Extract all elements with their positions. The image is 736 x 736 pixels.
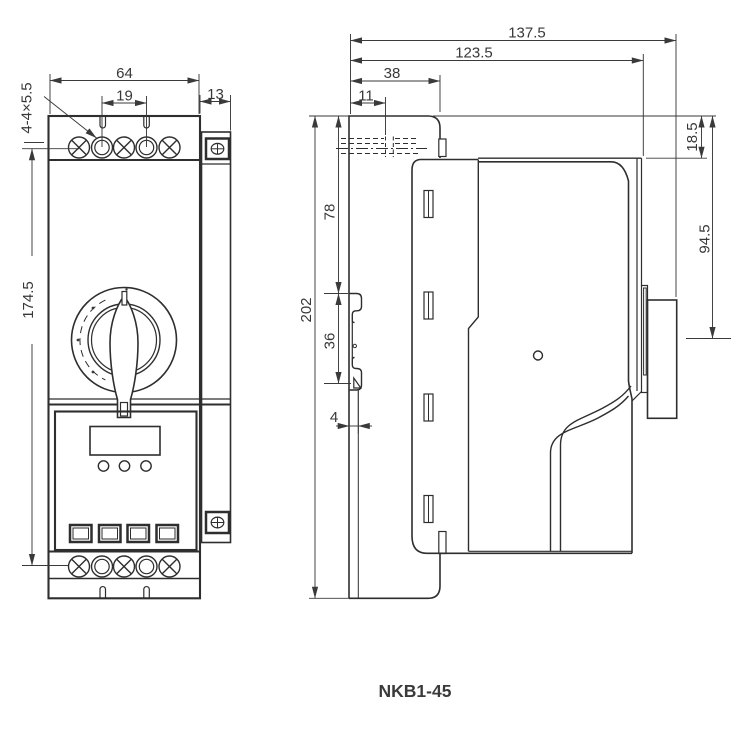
dim-side-depth-body: 123.5 (455, 45, 493, 62)
clip-spring-mark (354, 378, 361, 388)
mounting-plate (336, 116, 446, 598)
position-dot (92, 371, 95, 374)
rotary-knob (72, 288, 177, 418)
case-hole (534, 351, 543, 360)
wire-slot (100, 587, 149, 599)
dim-side-depth-total: 137.5 (508, 25, 546, 42)
position-dot (77, 339, 80, 342)
din-rail-clip (349, 294, 362, 391)
terminal-screws-top (69, 137, 181, 158)
front-view: 64 19 13 4-4×5.5 174.5 (19, 65, 231, 598)
indicator-lamp (141, 461, 151, 471)
plate-tab (439, 139, 446, 157)
dim-side-top-inset: 18.5 (684, 122, 701, 151)
handle-tip (121, 403, 128, 417)
side-dimensions: 202 137.5 123.5 38 11 78 36 4 (298, 25, 731, 599)
dim-front-side-unit: 13 (207, 86, 224, 103)
drawing-title: NKB1-45 (379, 681, 452, 701)
dim-side-hole-offset: 11 (358, 88, 374, 105)
position-dot (125, 288, 127, 290)
dim-front-terminal-pitch: 19 (116, 88, 133, 105)
dimension-drawing: 64 19 13 4-4×5.5 174.5 (0, 0, 736, 736)
clip-pin (353, 344, 356, 347)
wire-slot (100, 116, 149, 128)
case-body (412, 158, 677, 553)
knob-index-mark (122, 292, 127, 306)
indicator-lamp (98, 461, 108, 471)
case-step-edge (561, 386, 632, 551)
case-step-edge (551, 396, 629, 551)
position-dot (92, 307, 95, 310)
dim-side-plate-thickness: 4 (330, 409, 338, 426)
mount-holes-leader (44, 97, 97, 139)
side-view: 202 137.5 123.5 38 11 78 36 4 (298, 25, 731, 599)
handle-side-profile (642, 286, 677, 419)
vent-slots (424, 191, 433, 523)
display-window (90, 427, 160, 456)
dim-side-upper-section: 78 (322, 204, 339, 221)
plate-tab (439, 532, 446, 554)
dim-front-width: 64 (116, 65, 133, 82)
dim-front-mount-holes: 4-4×5.5 (19, 82, 36, 133)
dim-side-height-total: 202 (298, 297, 315, 322)
indicator-lamp (119, 461, 129, 471)
dim-side-clip-section: 36 (322, 333, 339, 350)
control-panel (55, 412, 197, 551)
panel-buttons (70, 525, 178, 542)
dim-side-handle-face: 94.5 (697, 224, 714, 253)
dim-front-height: 174.5 (20, 281, 37, 319)
side-unit (202, 132, 231, 543)
technical-drawing-page: 64 19 13 4-4×5.5 174.5 (0, 0, 736, 736)
terminal-screws-bottom (69, 556, 181, 577)
dim-side-flange-width: 38 (384, 65, 401, 82)
